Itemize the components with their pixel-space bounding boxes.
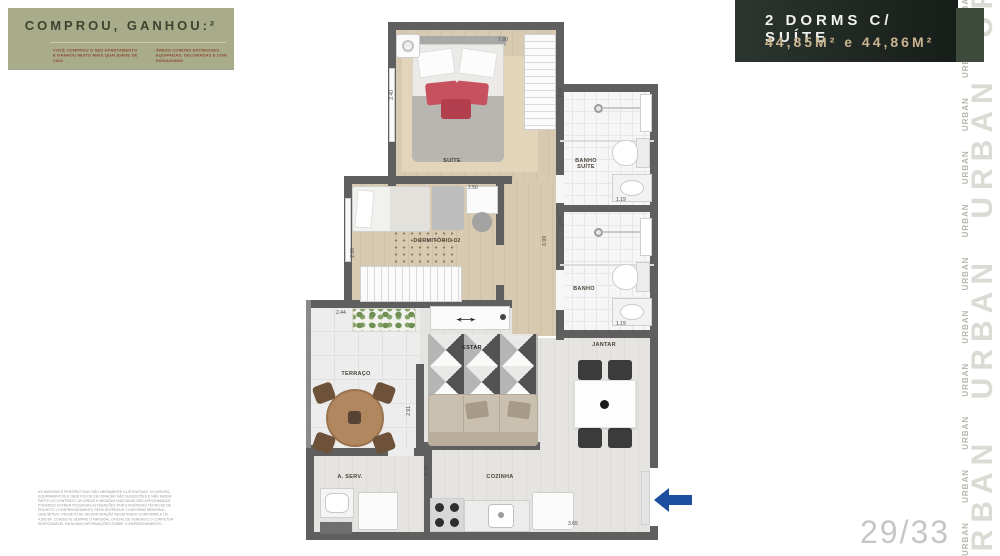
burner — [450, 503, 459, 512]
dorm2-wardrobe — [360, 266, 462, 302]
sofa-pillow — [507, 401, 531, 420]
wall — [416, 364, 424, 452]
burner — [435, 518, 444, 527]
dim-hall: 6.99 — [542, 236, 548, 246]
sink-basin — [620, 304, 644, 320]
dining-chair — [608, 428, 632, 448]
dim-banho-suite-width: 1.19 — [616, 197, 626, 203]
slide-arrow-icon: ↔ — [407, 308, 525, 328]
dining-chair — [578, 360, 602, 380]
wall — [388, 22, 564, 30]
door-gap-banho — [556, 270, 564, 310]
room-label-estar: ESTAR — [456, 345, 488, 351]
dorm2-blanket — [390, 187, 430, 231]
dim-banho-width: 1.19 — [616, 321, 626, 327]
room-label-jantar: JANTAR — [586, 342, 622, 348]
wall — [306, 445, 314, 540]
room-label-cozinha: COZINHA — [478, 474, 522, 480]
dining-chair — [578, 428, 602, 448]
sofa-seam — [463, 396, 464, 432]
sink-basin — [620, 180, 644, 196]
wall — [556, 205, 658, 212]
door-gap-dorm2 — [496, 245, 504, 285]
terrace-railing — [306, 300, 311, 452]
door-gap-banho-suite — [556, 175, 564, 203]
dim-suite-height: 2.40 — [389, 90, 395, 100]
room-label-suite: SUÍTE — [432, 158, 472, 164]
arrow-shaft — [668, 495, 692, 505]
suite-pillow-red — [441, 99, 471, 119]
door-gap-suite — [528, 180, 556, 184]
sofa-back — [428, 432, 538, 446]
estar-rug — [428, 334, 538, 396]
dim-estar-height: 2.91 — [406, 406, 412, 416]
suite-pillow — [416, 48, 455, 79]
dim-suite-width: 7.90 — [498, 37, 508, 43]
toilet-bowl — [612, 140, 638, 166]
dining-chair — [608, 360, 632, 380]
shower-glass — [640, 218, 652, 256]
entrance-door — [641, 471, 650, 525]
dim-cozinha-width: 3.65 — [568, 521, 578, 527]
dorm2-chair — [472, 212, 492, 232]
toilet-tank — [636, 262, 650, 292]
burner — [450, 518, 459, 527]
dorm2-pillow — [354, 189, 374, 228]
wall — [306, 532, 658, 540]
dim-terraco-width: 2.44 — [336, 310, 346, 316]
suite-pillow — [458, 48, 497, 79]
arrow-head — [654, 488, 669, 512]
dim-dorm2-height: 2.00 — [350, 248, 356, 258]
window-suite — [389, 68, 395, 142]
dim-banho-height: 2.14 — [558, 216, 564, 226]
kitchen-faucet — [498, 512, 504, 518]
toilet-tank — [636, 138, 650, 168]
entrance-arrow-icon — [654, 486, 698, 514]
room-label-dorm2: DORMITÓRIO 02 — [402, 238, 472, 244]
suite-wardrobe — [524, 34, 556, 130]
table-centerpiece — [600, 400, 609, 409]
burner — [435, 503, 444, 512]
brochure-page: COMPROU, GANHOU:² VOCÊ COMPROU O SEU APA… — [0, 0, 1000, 556]
dorm2-mattress — [432, 186, 464, 230]
room-label-banho: BANHO — [566, 286, 602, 292]
tank-basin — [325, 493, 349, 513]
washing-machine — [358, 492, 398, 530]
floorplan: ↔ SUÍTE DORMITÓRIO 02 BANHO S — [0, 0, 1000, 556]
stove — [430, 498, 464, 532]
room-label-aserv: A. SERV. — [328, 474, 372, 480]
room-label-banho-suite: BANHO SUÍTE — [568, 158, 604, 170]
terrace-centerpiece — [348, 411, 361, 424]
suite-lamp — [402, 40, 414, 52]
wall — [556, 330, 658, 338]
shower-glass — [640, 94, 652, 132]
sofa-pillow — [465, 401, 489, 420]
dim-banho-suite-height: 2.44 — [558, 88, 564, 98]
sofa-seam — [499, 396, 500, 432]
room-label-terraco: TERRAÇO — [336, 371, 376, 377]
dim-cozinha-height: 1.43 — [424, 466, 430, 476]
laundry-shelf — [320, 522, 352, 534]
toilet-bowl — [612, 264, 638, 290]
dim-dorm2-width: 2.50 — [468, 185, 478, 191]
tv-panel-knob — [500, 314, 506, 320]
wall — [556, 84, 658, 92]
wall — [344, 176, 512, 184]
